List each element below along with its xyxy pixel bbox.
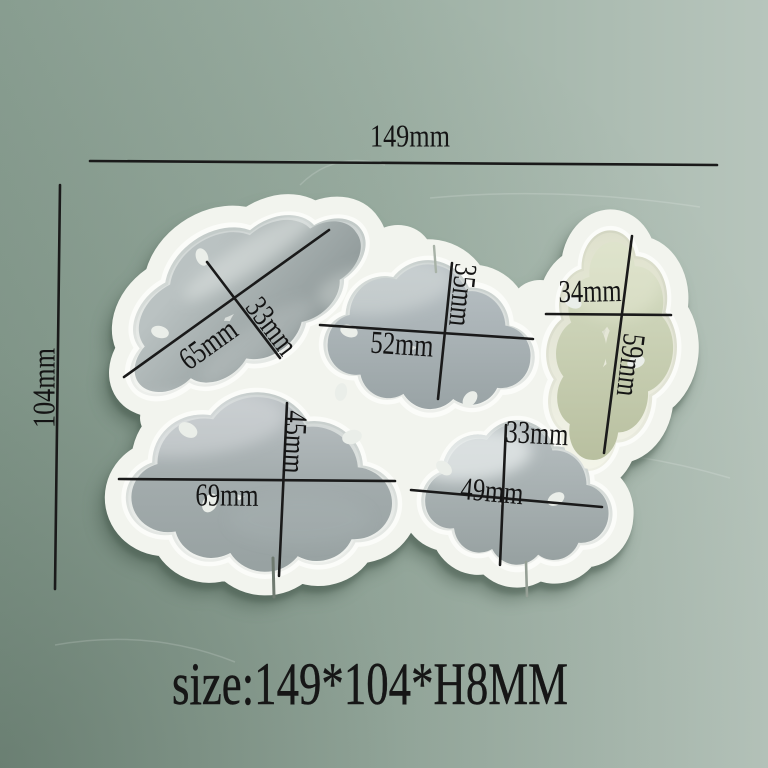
svg-text:52mm: 52mm xyxy=(369,324,434,364)
svg-text:149mm: 149mm xyxy=(370,118,450,154)
svg-text:34mm: 34mm xyxy=(558,272,622,309)
svg-text:104mm: 104mm xyxy=(26,348,62,428)
svg-text:49mm: 49mm xyxy=(459,470,525,511)
svg-text:33mm: 33mm xyxy=(505,413,570,452)
svg-text:45mm: 45mm xyxy=(276,410,315,475)
svg-text:69mm: 69mm xyxy=(195,476,258,513)
svg-text:59mm: 59mm xyxy=(610,332,653,399)
svg-text:size:149*104*H8MM: size:149*104*H8MM xyxy=(172,651,568,717)
svg-text:35mm: 35mm xyxy=(442,262,484,329)
